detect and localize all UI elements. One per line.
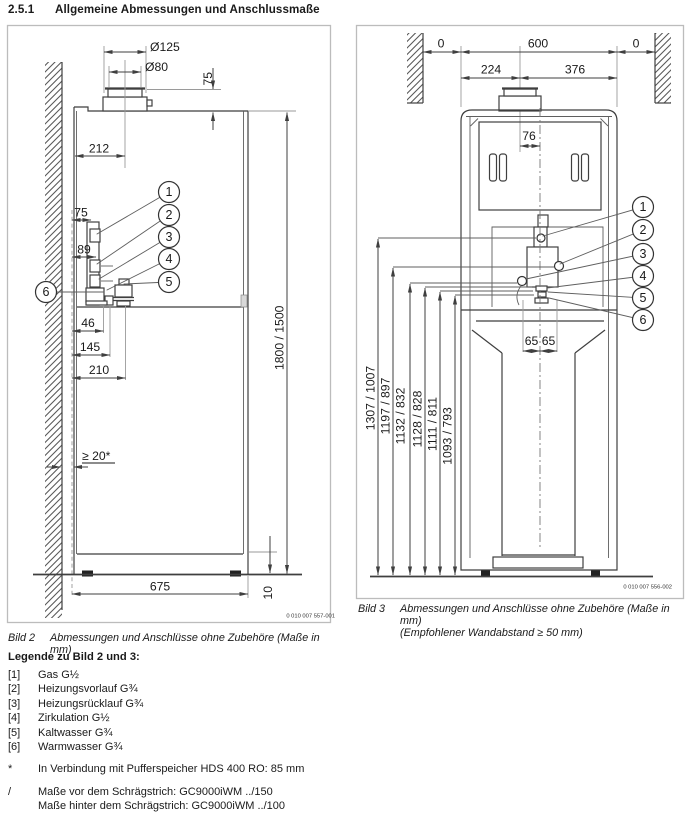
wall-hatch-left [45, 62, 62, 618]
bild3-caption-label: Bild 3 [358, 603, 400, 639]
dim-label-76: 76 [522, 129, 536, 143]
bild3-caption-text: Abmessungen und Anschlüsse ohne Zubehöre… [400, 603, 684, 639]
legend-key-1: [1] [8, 668, 38, 682]
legend-key-2: [2] [8, 682, 38, 696]
dim-label-right-gap: 0 [633, 37, 640, 51]
boiler-unit-front-view [461, 110, 617, 577]
callout-6: 6 [43, 285, 50, 299]
dim-label-flue-inner: Ø80 [145, 60, 168, 74]
dim-label-feet-height: 10 [261, 586, 275, 600]
legend-key-3: [3] [8, 697, 38, 711]
dim-top-row: 0 600 0 224 376 [423, 37, 655, 153]
connection-fittings [86, 222, 134, 306]
dim-label-145: 145 [80, 340, 101, 354]
legend-text-5: Kaltwasser G¾ [38, 726, 113, 740]
dim-label-210: 210 [89, 363, 110, 377]
flue-pipe [103, 60, 152, 168]
legend-title: Legende zu Bild 2 und 3: [8, 651, 304, 663]
dim-label-224: 224 [481, 63, 502, 77]
dim-label-conn-offset: 89 [77, 243, 91, 257]
dim-label-flue-offset: 212 [89, 142, 110, 156]
legend-key-star: * [8, 762, 38, 776]
dim-label-width: 675 [150, 580, 171, 594]
dim-label-width-600: 600 [528, 37, 549, 51]
legend-key-5: [5] [8, 726, 38, 740]
wall-hatch-top-right [655, 33, 671, 103]
dim-feet-height: 10 [249, 536, 277, 600]
bild3-drawing-code: 0 010 007 556-002 [623, 585, 672, 591]
dim-label-height-1: 1307 / 1007 [364, 366, 378, 431]
bild2-figure: Ø125 Ø80 75 212 75 89 [8, 26, 336, 623]
callout-3: 3 [166, 230, 173, 244]
legend-item-5: [5] Kaltwasser G¾ [8, 726, 304, 740]
legend-item-2: [2] Heizungsvorlauf G¾ [8, 682, 304, 696]
dim-label-height-3: 1132 / 832 [394, 387, 408, 444]
dim-flue-outer: Ø125 [104, 40, 180, 93]
bild3-callout-3: 3 [640, 247, 647, 261]
dim-label-flue-outer: Ø125 [150, 40, 180, 54]
dim-gas-offset: 75 [72, 206, 91, 221]
bild3-callout-2: 2 [640, 223, 647, 237]
dim-label-total-height: 1800 / 1500 [273, 305, 287, 370]
callout-2: 2 [166, 208, 173, 222]
legend-text-2: Heizungsvorlauf G¾ [38, 682, 138, 696]
dim-flue-inner: Ø80 [109, 60, 168, 87]
callout-1: 1 [166, 185, 173, 199]
legend-item-4: [4] Zirkulation G½ [8, 711, 304, 725]
dim-flue-height: 75 [147, 68, 221, 130]
dim-total-height: 1800 / 1500 [248, 111, 296, 574]
section-number: 2.5.1 [8, 3, 55, 16]
bild3-callout-1: 1 [640, 200, 647, 214]
dim-label-wall-gap: ≥ 20* [82, 449, 111, 463]
callout-4: 4 [166, 252, 173, 266]
legend-text-4: Zirkulation G½ [38, 711, 110, 725]
bild3-caption-line1: Abmessungen und Anschlüsse ohne Zubehöre… [400, 603, 684, 627]
wall-hatch-top-left [407, 33, 423, 103]
bild2-drawing-code: 0 010 007 557-001 [286, 614, 335, 620]
dim-label-65-right: 65 [542, 334, 556, 348]
dim-label-height-5: 1111 / 811 [426, 397, 440, 451]
legend-item-slash: / Maße vor dem Schrägstrich: GC9000iWM .… [8, 785, 304, 814]
bild3-figure: 0 600 0 224 376 [357, 26, 684, 599]
section-title: Allgemeine Abmessungen und Anschlussmaße [55, 3, 320, 16]
legend-text-star: In Verbindung mit Pufferspeicher HDS 400… [38, 762, 304, 776]
dim-label-left-gap: 0 [438, 37, 445, 51]
legend-item-3: [3] Heizungsrücklauf G¾ [8, 697, 304, 711]
legend-text-6: Warmwasser G¾ [38, 740, 123, 754]
flue-pipe-front [499, 89, 541, 112]
dim-width: 675 [72, 576, 248, 598]
bild3-callout-6: 6 [640, 313, 647, 327]
legend-text-slash-line1: Maße vor dem Schrägstrich: GC9000iWM ../… [38, 785, 285, 799]
dim-label-height-2: 1197 / 897 [379, 377, 393, 434]
dim-label-height-4: 1128 / 828 [411, 390, 425, 447]
legend-text-1: Gas G½ [38, 668, 79, 682]
dim-label-height-6: 1093 / 793 [441, 407, 455, 465]
document-page: Ø125 Ø80 75 212 75 89 [0, 0, 691, 818]
bild3-caption: Bild 3 Abmessungen und Anschlüsse ohne Z… [358, 603, 684, 639]
legend-key-4: [4] [8, 711, 38, 725]
bild3-callout-4: 4 [640, 269, 647, 283]
callout-5: 5 [166, 275, 173, 289]
legend-key-6: [6] [8, 740, 38, 754]
legend-item-star: * In Verbindung mit Pufferspeicher HDS 4… [8, 762, 304, 776]
dim-label-flue-height: 75 [201, 72, 215, 86]
section-heading: 2.5.1 Allgemeine Abmessungen und Anschlu… [8, 3, 320, 16]
dim-label-65-left: 65 [525, 334, 539, 348]
bild3-callout-5: 5 [640, 291, 647, 305]
dim-label-376: 376 [565, 63, 586, 77]
dim-connection-heights: 1307 / 1007 1197 / 897 1132 / 832 1128 /… [364, 238, 555, 575]
legend-text-slash-line2: Maße hinter dem Schrägstrich: GC9000iWM … [38, 799, 285, 813]
bild3-caption-line2: (Empfohlener Wandabstand ≥ 50 mm) [400, 627, 684, 639]
legend-item-1: [1] Gas G½ [8, 668, 304, 682]
legend-text-slash: Maße vor dem Schrägstrich: GC9000iWM ../… [38, 785, 285, 814]
dim-label-46: 46 [81, 316, 95, 330]
dim-label-gas-offset: 75 [74, 206, 88, 220]
legend-item-6: [6] Warmwasser G¾ [8, 740, 304, 754]
dim-flue-offset: 212 [75, 142, 125, 157]
legend-key-slash: / [8, 785, 38, 814]
legend: Legende zu Bild 2 und 3: [1] Gas G½ [2] … [8, 651, 304, 814]
legend-text-3: Heizungsrücklauf G¾ [38, 697, 143, 711]
